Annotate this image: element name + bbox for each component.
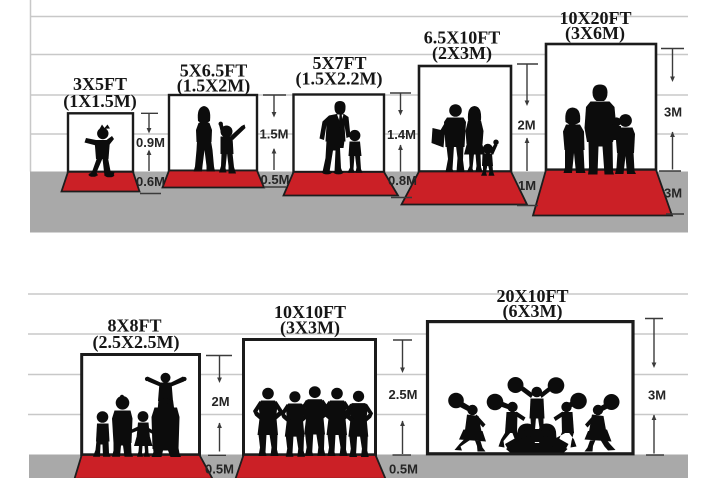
svg-text:3M: 3M	[648, 388, 666, 403]
svg-text:(2X3M): (2X3M)	[432, 43, 492, 64]
svg-text:(1X1.5M): (1X1.5M)	[63, 91, 136, 112]
svg-text:0.5M: 0.5M	[205, 462, 234, 477]
svg-text:0.8M: 0.8M	[388, 173, 417, 188]
svg-text:(3X6M): (3X6M)	[565, 23, 625, 44]
svg-text:(1.5X2.2M): (1.5X2.2M)	[296, 69, 383, 90]
svg-text:3M: 3M	[664, 186, 682, 201]
svg-text:0.5M: 0.5M	[261, 172, 290, 187]
svg-text:(3X3M): (3X3M)	[280, 318, 340, 339]
svg-text:0.9M: 0.9M	[136, 135, 165, 150]
svg-text:(1.5X2M): (1.5X2M)	[177, 76, 250, 97]
svg-text:0.5M: 0.5M	[389, 462, 418, 477]
svg-text:(6X3M): (6X3M)	[503, 301, 563, 322]
svg-text:0.6M: 0.6M	[136, 174, 165, 189]
svg-text:(2.5X2.5M): (2.5X2.5M)	[93, 332, 180, 353]
svg-text:1.5M: 1.5M	[260, 127, 289, 142]
svg-text:2M: 2M	[517, 118, 535, 133]
svg-text:2.5M: 2.5M	[389, 387, 418, 402]
svg-text:1.4M: 1.4M	[387, 127, 416, 142]
svg-text:2M: 2M	[211, 394, 229, 409]
svg-text:3M: 3M	[664, 105, 682, 120]
svg-text:1M: 1M	[518, 178, 536, 193]
